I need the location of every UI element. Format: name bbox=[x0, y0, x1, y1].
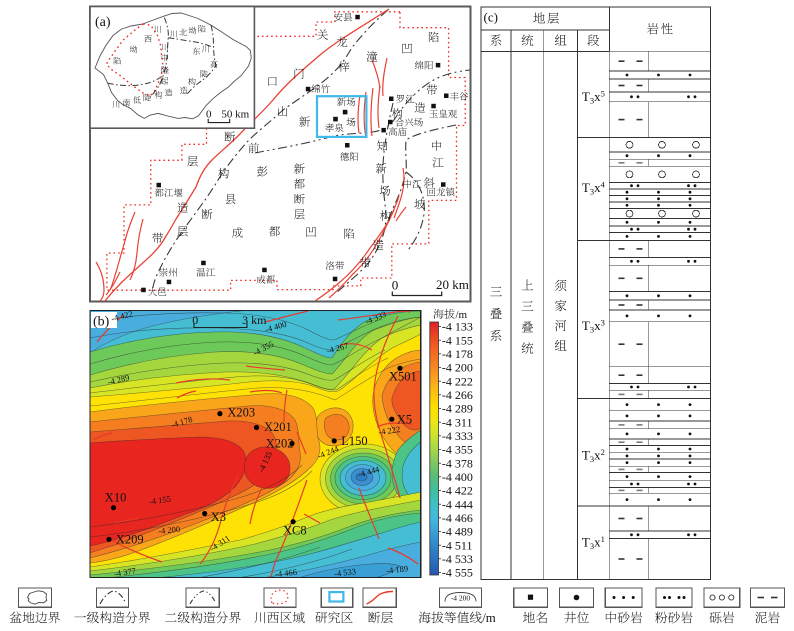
svg-text:X203: X203 bbox=[227, 406, 255, 420]
svg-text:-4 378: -4 378 bbox=[442, 456, 473, 470]
svg-text:-4 422: -4 422 bbox=[442, 484, 473, 498]
svg-text:-4 200: -4 200 bbox=[442, 361, 473, 375]
svg-text:X10: X10 bbox=[105, 491, 127, 505]
svg-text:X501: X501 bbox=[389, 370, 417, 384]
svg-text:-4 311: -4 311 bbox=[442, 415, 473, 429]
svg-text:50 km: 50 km bbox=[221, 109, 249, 121]
svg-text:-4 533: -4 533 bbox=[442, 552, 473, 566]
svg-text:-4 400: -4 400 bbox=[442, 470, 473, 484]
svg-text:-4 355: -4 355 bbox=[442, 443, 473, 457]
svg-text:L150: L150 bbox=[341, 434, 367, 448]
svg-text:0: 0 bbox=[392, 278, 399, 293]
svg-text:-4 200: -4 200 bbox=[451, 594, 471, 603]
svg-text:-4 222: -4 222 bbox=[442, 374, 473, 388]
svg-text:(a): (a) bbox=[95, 15, 111, 30]
svg-text:0: 0 bbox=[206, 109, 212, 121]
svg-text:-4 133: -4 133 bbox=[442, 320, 473, 334]
svg-text:-4 289: -4 289 bbox=[442, 402, 473, 416]
svg-text:-4 511: -4 511 bbox=[442, 538, 473, 552]
svg-text:-4 178: -4 178 bbox=[442, 347, 473, 361]
svg-text:20 km: 20 km bbox=[436, 277, 469, 292]
svg-text:-4 266: -4 266 bbox=[442, 388, 473, 402]
svg-text:-4 333: -4 333 bbox=[442, 429, 473, 443]
svg-text:X201: X201 bbox=[264, 420, 292, 434]
svg-text:0: 0 bbox=[192, 313, 198, 327]
svg-text:-4 489: -4 489 bbox=[442, 525, 473, 539]
svg-text:X202: X202 bbox=[266, 437, 294, 451]
svg-text:(c): (c) bbox=[484, 10, 498, 25]
svg-text:X3: X3 bbox=[211, 510, 226, 524]
svg-text:-4 155: -4 155 bbox=[442, 333, 473, 347]
svg-text:-4 444: -4 444 bbox=[442, 497, 473, 511]
svg-text:-4 555: -4 555 bbox=[442, 566, 473, 580]
svg-text:(b): (b) bbox=[93, 315, 110, 330]
svg-text:/m: /m bbox=[482, 611, 496, 625]
svg-text:X209: X209 bbox=[116, 533, 144, 547]
svg-text:-4 466: -4 466 bbox=[442, 511, 473, 525]
svg-text:XC8: XC8 bbox=[283, 524, 307, 538]
